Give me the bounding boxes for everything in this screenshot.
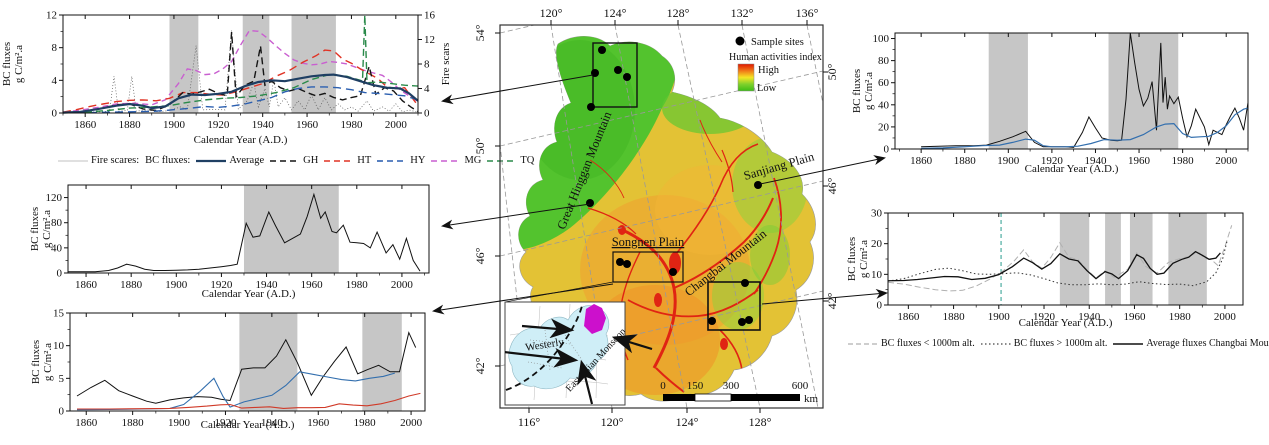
legend-label: BC fluxes < 1000m alt. <box>881 338 975 349</box>
x-tick-label: 1900 <box>988 311 1011 323</box>
x-tick-label: 1920 <box>207 119 230 131</box>
x-axis-title: Calendar Year (A.D.) <box>1019 317 1113 329</box>
chart-middle-left: 1860188019001920194019601980200004080120… <box>0 180 470 302</box>
x-axis-title: Calendar Year (A.D.) <box>202 288 296 300</box>
scale-600: 600 <box>792 380 809 392</box>
shaded-band <box>243 15 270 113</box>
x-tick-label: 1880 <box>119 119 142 131</box>
y-axis-title: BC fluxesg C/m².a <box>29 207 53 251</box>
lat-label: 42° <box>473 357 487 374</box>
legend-item: Fire scares: <box>58 155 139 166</box>
x-tick-label: 1960 <box>1128 155 1151 167</box>
legend-item: BC fluxes > 1000m alt. <box>981 338 1108 349</box>
chart-middle-left-svg: 1860188019001920194019601980200004080120… <box>0 180 470 302</box>
legend-label: Fire scares: <box>91 155 139 166</box>
hinggan_multi-plot: 1860188019001920194019601980200004812048… <box>1 10 452 147</box>
x-tick-label: 2000 <box>1214 311 1237 323</box>
y2-tick-label: 0 <box>424 108 430 120</box>
x-tick-label: 1960 <box>301 279 324 291</box>
map-legend: Sample sites Human activities index High… <box>729 37 822 95</box>
x-tick-label: 1980 <box>340 119 363 131</box>
y-tick-label: 20 <box>878 121 890 133</box>
y-tick-label: 100 <box>873 33 890 45</box>
chart-bottom-right-svg: 186018801900192019401960198020000102030C… <box>845 195 1269 335</box>
y-axis-title: BC fluxesg C/m².a <box>30 340 54 384</box>
hai-color-ramp <box>738 64 754 91</box>
legend-item: HT <box>324 155 371 166</box>
legend-label: BC fluxes > 1000m alt. <box>1014 338 1108 349</box>
y-tick-label: 80 <box>878 55 890 67</box>
lat-label: 54° <box>473 24 487 41</box>
lon-label: 124° <box>604 6 627 20</box>
lat-label: 46° <box>825 177 839 194</box>
legend-top-left: Fire scares:BC fluxes:AverageGHHTHYMGTQ <box>58 155 470 166</box>
x-axis-title: Calendar Year (A.D.) <box>194 134 288 146</box>
plot-frame <box>895 33 1248 149</box>
lat-label: 50° <box>473 137 487 154</box>
series-sanjiang-black <box>921 33 1248 147</box>
y2-tick-label: 4 <box>424 83 430 95</box>
y-tick-label: 0 <box>877 300 883 312</box>
legend-hai-title: Human activities index <box>729 52 822 63</box>
y2-tick-label: 8 <box>424 59 430 71</box>
x-tick-label: 1860 <box>75 417 98 429</box>
legend-item: GH <box>270 155 318 166</box>
shaded-band <box>1105 213 1121 305</box>
label-songnen: Songnen Plain <box>612 235 685 249</box>
shaded-band <box>1168 213 1206 305</box>
shaded-band <box>1109 33 1179 149</box>
x-tick-label: 1900 <box>165 279 188 291</box>
chart-top-left-svg: 1860188019001920194019601980200004812048… <box>0 0 470 152</box>
x-tick-label: 1880 <box>120 279 143 291</box>
lon-label: 124° <box>676 415 699 429</box>
legend-label: GH <box>303 155 318 166</box>
y-axis-title: BC fluxesg C/m².a <box>1 42 25 86</box>
y-tick-label: 12 <box>46 10 57 22</box>
legend-label: Average <box>229 155 264 166</box>
x-tick-label: 1860 <box>74 119 97 131</box>
x-tick-label: 1860 <box>910 155 933 167</box>
y-tick-label: 120 <box>46 192 63 204</box>
x-tick-label: 2000 <box>400 417 423 429</box>
y-tick-label: 15 <box>53 308 65 320</box>
legend-item: HY <box>377 155 425 166</box>
x-tick-label: 1960 <box>1123 311 1146 323</box>
study-area-map: Great Hinggan Mountain Songnen Plain San… <box>470 0 860 445</box>
y-tick-label: 8 <box>52 42 58 54</box>
x-tick-label: 1880 <box>122 417 145 429</box>
legend-label: HT <box>357 155 371 166</box>
scale-0: 0 <box>660 380 666 392</box>
chart-bottom-left: 18601880190019201940196019802000051015Ca… <box>0 300 470 445</box>
shaded-band <box>244 185 339 273</box>
legend-line-swatch <box>196 157 226 165</box>
y-tick-label: 0 <box>59 406 65 418</box>
legend-line-swatch <box>431 157 461 165</box>
x-tick-label: 2000 <box>391 279 414 291</box>
legend-item: BC fluxes: <box>145 155 190 166</box>
x-tick-label: 1960 <box>296 119 319 131</box>
y-tick-label: 4 <box>52 75 58 87</box>
y2-tick-label: 16 <box>424 10 436 22</box>
x-tick-label: 1900 <box>168 417 191 429</box>
map-svg: Great Hinggan Mountain Songnen Plain San… <box>470 0 860 445</box>
series-MG <box>63 31 418 113</box>
lon-label: 120° <box>540 6 563 20</box>
legend-line-swatch <box>1113 340 1143 348</box>
x-tick-label: 2000 <box>385 119 408 131</box>
x-tick-label: 1980 <box>1169 311 1192 323</box>
x-axis-title: Calendar Year (A.D.) <box>1025 163 1119 175</box>
top_right-plot: 1860188019001920194019601980200002040608… <box>851 33 1248 175</box>
legend-bottom-right: BC fluxes < 1000m alt.BC fluxes > 1000m … <box>848 338 1268 349</box>
y-tick-label: 30 <box>871 208 883 220</box>
y-tick-label: 0 <box>57 268 63 280</box>
middle_left-plot: 1860188019001920194019601980200004080120… <box>29 185 429 300</box>
y-tick-label: 0 <box>52 108 58 120</box>
scale-150: 150 <box>687 380 704 392</box>
x-tick-label: 1900 <box>997 155 1020 167</box>
legend-line-swatch <box>270 157 300 165</box>
chart-top-right-svg: 1860188019001920194019601980200002040608… <box>845 0 1269 185</box>
x-tick-label: 1880 <box>943 311 966 323</box>
lat-label: 46° <box>473 247 487 264</box>
legend-line-swatch <box>377 157 407 165</box>
lat-label: 50° <box>825 63 839 80</box>
x-tick-label: 1900 <box>163 119 186 131</box>
y-tick-label: 10 <box>871 269 883 281</box>
lon-label: 132° <box>731 6 754 20</box>
legend-line-swatch <box>981 340 1011 348</box>
lon-label: 128° <box>667 6 690 20</box>
x-axis-title: Calendar Year (A.D.) <box>201 419 295 431</box>
series-Fire scars <box>63 30 418 113</box>
x-tick-label: 1880 <box>954 155 977 167</box>
legend-line-swatch <box>58 157 88 165</box>
x-tick-label: 2000 <box>1215 155 1238 167</box>
sample-sites-icon <box>736 37 745 46</box>
lon-label: 136° <box>796 6 819 20</box>
shaded-band <box>989 33 1028 149</box>
bottom_left-plot: 18601880190019201940196019802000051015Ca… <box>30 308 425 432</box>
figure-canvas: 1860188019001920194019601980200004812048… <box>0 0 1269 445</box>
y-tick-label: 0 <box>884 144 890 156</box>
shaded-band <box>170 15 199 113</box>
chart-great-hinggan-multi-site: 1860188019001920194019601980200004812048… <box>0 0 470 152</box>
bottom_right-plot: 186018801900192019401960198020000102030C… <box>846 208 1243 330</box>
legend-line-swatch <box>324 157 354 165</box>
legend-label: Average fluxes Changbai Mountain <box>1146 338 1269 349</box>
chart-bottom-right-changbai: 186018801900192019401960198020000102030C… <box>845 195 1269 335</box>
legend-item: BC fluxes < 1000m alt. <box>848 338 975 349</box>
y2-axis-title: Fire scars <box>440 43 452 85</box>
lon-label: 116° <box>518 415 541 429</box>
x-tick-label: 1980 <box>1172 155 1195 167</box>
chart-top-right-sanjiang: 1860188019001920194019601980200002040608… <box>845 0 1269 185</box>
y2-tick-label: 12 <box>424 34 435 46</box>
legend-item: Average <box>196 155 264 166</box>
legend-low: Low <box>757 83 777 94</box>
legend-sample-sites: Sample sites <box>751 37 804 48</box>
legend-label: BC fluxes: <box>145 155 190 166</box>
shaded-band <box>362 313 401 411</box>
series-TQ <box>63 15 418 113</box>
y-tick-label: 10 <box>53 340 65 352</box>
legend-label: HY <box>410 155 425 166</box>
lat-label: 42° <box>825 292 839 309</box>
scale-unit: km <box>804 393 819 405</box>
y-tick-label: 20 <box>871 238 883 250</box>
x-tick-label: 1980 <box>346 279 369 291</box>
lon-label: 120° <box>601 415 624 429</box>
x-tick-label: 1940 <box>252 119 275 131</box>
scale-300: 300 <box>723 380 740 392</box>
y-tick-label: 5 <box>59 373 65 385</box>
lon-label: 128° <box>749 415 772 429</box>
legend-item: Average fluxes Changbai Mountain <box>1113 338 1269 349</box>
chart-bottom-left-svg: 18601880190019201940196019802000051015Ca… <box>0 300 470 445</box>
y-tick-label: 60 <box>878 77 890 89</box>
x-tick-label: 1960 <box>307 417 330 429</box>
legend-high: High <box>758 65 780 76</box>
x-tick-label: 1860 <box>75 279 98 291</box>
y-tick-label: 40 <box>878 99 890 111</box>
x-tick-label: 1980 <box>354 417 377 429</box>
x-tick-label: 1860 <box>897 311 920 323</box>
